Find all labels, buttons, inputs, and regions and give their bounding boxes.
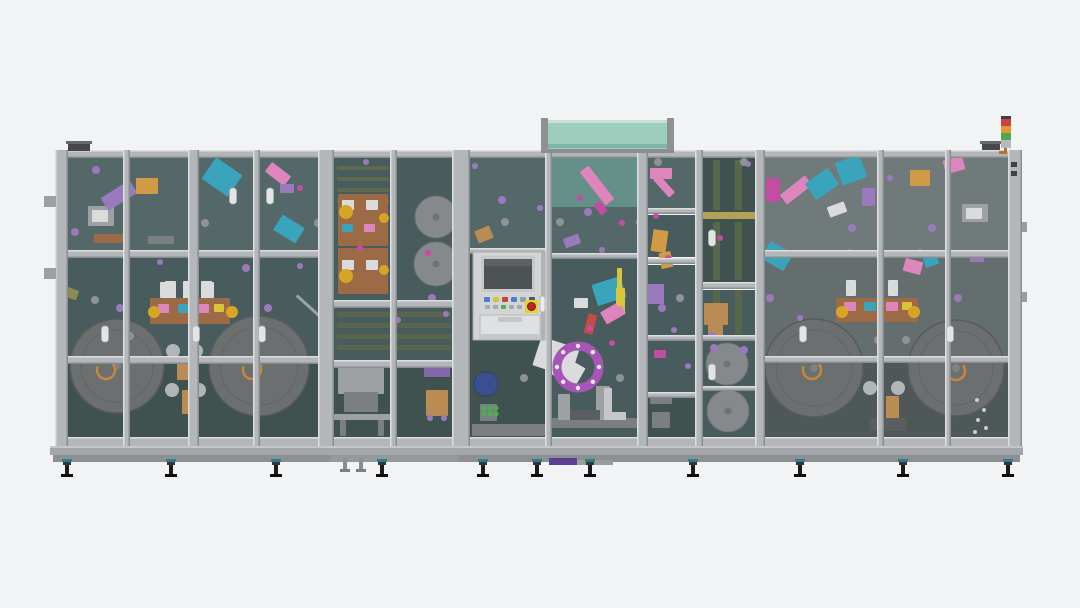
component — [701, 212, 757, 219]
component-dot — [357, 245, 363, 251]
component — [910, 170, 930, 186]
foot-neck — [1004, 462, 1012, 465]
component-dot — [863, 381, 877, 395]
component-dot — [556, 218, 564, 226]
foot-stem — [169, 465, 173, 475]
component-dot — [685, 363, 691, 369]
machine-scene — [0, 0, 1080, 608]
component-dot — [577, 195, 583, 201]
reel-hub — [952, 364, 960, 372]
component-dot — [520, 374, 528, 382]
foot-neck — [63, 462, 71, 465]
rail-shadow — [703, 288, 755, 290]
foot-base — [687, 474, 699, 477]
material-reel-medium — [414, 242, 458, 286]
frame-rail — [648, 335, 695, 341]
side-tab — [44, 196, 56, 207]
foot-collar — [377, 459, 387, 462]
component — [92, 210, 108, 222]
post-face — [318, 150, 334, 448]
post-highlight — [877, 150, 879, 448]
component — [862, 188, 875, 206]
component-dot — [494, 412, 499, 417]
component-dot — [425, 250, 431, 256]
component — [366, 200, 378, 210]
component-dot — [766, 294, 774, 302]
conveyor-stripe — [735, 222, 742, 280]
component-dot — [472, 163, 478, 169]
component — [198, 304, 209, 313]
component-dot — [379, 265, 389, 275]
post-shadow — [551, 150, 553, 448]
rail-highlight — [648, 258, 695, 260]
foot-stem — [1006, 465, 1010, 475]
endcap-vent — [1011, 171, 1017, 176]
component — [846, 280, 856, 296]
component-dot — [91, 296, 99, 304]
door-handle — [947, 326, 954, 342]
frame-post — [253, 150, 260, 448]
component — [886, 302, 898, 311]
component — [338, 368, 384, 394]
post-face — [637, 150, 648, 448]
component — [870, 418, 906, 431]
foot-base — [794, 474, 806, 477]
door-handle — [800, 326, 807, 342]
glass-panel — [703, 158, 755, 282]
base-skirt-drop — [330, 455, 458, 462]
component-dot — [537, 205, 543, 211]
component — [654, 350, 666, 358]
ring-hole — [597, 365, 601, 369]
post-face — [1008, 150, 1022, 448]
component-dot — [339, 205, 353, 219]
frame-post — [188, 150, 199, 448]
foot-stem — [588, 465, 592, 475]
component — [424, 367, 450, 377]
roof-vent — [66, 141, 92, 151]
component-dot — [740, 158, 748, 166]
endcap-vent — [1011, 162, 1017, 167]
component — [136, 178, 158, 194]
foot-stem — [691, 465, 695, 475]
component — [280, 184, 294, 193]
post-highlight — [188, 150, 190, 448]
component-dot — [599, 247, 605, 253]
reel-hub — [433, 261, 440, 268]
component-dot — [363, 159, 369, 165]
component-dot — [976, 418, 980, 422]
frame-post — [945, 150, 951, 448]
tealbox-post-left — [541, 118, 548, 151]
component — [366, 260, 378, 270]
component — [204, 282, 214, 298]
component-dot — [71, 228, 79, 236]
foot-base — [165, 474, 177, 477]
foot-collar — [795, 459, 805, 462]
component — [378, 420, 384, 436]
component-dot — [609, 340, 615, 346]
foot-base — [531, 474, 543, 477]
rail-shadow — [648, 213, 695, 215]
hmi-button — [493, 305, 498, 309]
frame-rail — [703, 282, 755, 289]
frame-rail — [552, 253, 637, 259]
foot-neck — [272, 462, 280, 465]
component-dot — [501, 218, 509, 226]
machine-render-stage — [0, 0, 1080, 608]
material-reel-large — [908, 320, 1004, 416]
hmi-screen-glare — [484, 259, 532, 266]
hmi-drawer-handle — [498, 317, 522, 322]
post-shadow — [129, 150, 131, 448]
ring-hole — [591, 350, 595, 354]
component — [652, 412, 670, 428]
vent-cap — [66, 141, 92, 144]
ring-hole — [576, 344, 580, 348]
post-shadow — [469, 150, 471, 448]
rail-shadow — [55, 157, 1022, 159]
component — [342, 224, 353, 232]
frame-post — [318, 150, 334, 448]
component — [766, 178, 780, 202]
component-dot — [902, 336, 910, 344]
foot-stem — [274, 465, 278, 475]
component-dot — [717, 235, 723, 241]
rail-shadow — [648, 263, 695, 265]
reel-hub — [724, 361, 731, 368]
component-dot — [297, 185, 303, 191]
component — [966, 208, 982, 219]
roof-vent — [980, 141, 1002, 150]
component-dot — [427, 415, 433, 421]
frame-rail — [55, 150, 1022, 158]
frame-rail — [648, 258, 695, 264]
component — [888, 280, 898, 296]
component-dot — [982, 408, 986, 412]
post-highlight — [755, 150, 757, 448]
foot-neck — [796, 462, 804, 465]
vent-body — [982, 143, 1000, 150]
foot-neck — [167, 462, 175, 465]
door-handle — [230, 188, 237, 204]
rail-shadow — [703, 390, 755, 392]
component — [160, 282, 170, 298]
component-dot — [482, 412, 487, 417]
material-reel-large — [70, 319, 164, 413]
post-highlight — [945, 150, 947, 448]
glass-panel — [552, 207, 637, 259]
foot-stem — [343, 458, 347, 470]
component — [704, 303, 728, 325]
hmi-button — [493, 297, 499, 302]
post-shadow — [1021, 150, 1023, 448]
reel-hub — [725, 408, 732, 415]
component-dot — [494, 406, 499, 411]
side-tab — [44, 268, 56, 279]
glass-panel — [648, 158, 695, 208]
component-dot — [379, 213, 389, 223]
rail-highlight — [765, 250, 1008, 252]
post-face — [55, 150, 68, 448]
foot-collar — [532, 459, 542, 462]
door-handle — [709, 364, 716, 380]
rail-shadow — [765, 362, 1008, 364]
component — [178, 304, 189, 313]
post-shadow — [198, 150, 200, 448]
foot-stem — [481, 465, 485, 475]
post-highlight — [253, 150, 255, 448]
component-dot — [619, 220, 625, 226]
rail-shadow — [648, 397, 695, 399]
rail-shadow — [552, 258, 637, 260]
reel-hub — [433, 214, 440, 221]
component — [340, 420, 346, 436]
component-dot — [891, 381, 905, 395]
conveyor-stripe — [337, 177, 389, 181]
foot-collar — [271, 459, 281, 462]
base-skirt-highlight — [50, 446, 1023, 448]
rail-highlight — [470, 248, 545, 250]
rail-highlight — [648, 335, 695, 337]
conveyor-stripe — [735, 160, 742, 210]
hmi-drawer-shade — [480, 334, 540, 338]
frame-post — [452, 150, 470, 448]
door-handle — [102, 326, 109, 342]
component-dot — [848, 224, 856, 232]
foot-neck — [479, 462, 487, 465]
component-dot — [488, 412, 493, 417]
frame-post — [55, 150, 68, 448]
component-dot — [339, 269, 353, 283]
component-dot — [226, 306, 238, 318]
component — [426, 390, 448, 416]
hmi-button — [501, 305, 506, 309]
vent-body — [68, 143, 90, 151]
frame-rail — [765, 356, 1008, 363]
component-dot — [740, 346, 748, 354]
tealbox-glass-highlight — [548, 120, 667, 123]
component-dot — [710, 344, 718, 352]
foot-collar — [166, 459, 176, 462]
door-handle — [709, 230, 716, 246]
material-reel-medium — [707, 390, 749, 432]
frame-rail — [765, 250, 1008, 258]
post-face — [452, 150, 470, 448]
frame-post — [877, 150, 884, 448]
rail-highlight — [648, 392, 695, 394]
component-dot — [166, 344, 180, 358]
component — [570, 410, 600, 420]
frame-rail — [703, 335, 755, 341]
hmi-button — [517, 305, 522, 309]
frame-post — [390, 150, 397, 448]
post-highlight — [452, 150, 454, 448]
post-highlight — [1008, 150, 1010, 448]
post-shadow — [702, 150, 704, 448]
rail-highlight — [552, 253, 637, 255]
post-face — [188, 150, 199, 448]
blue-reel — [474, 372, 498, 396]
ring-hole — [561, 380, 565, 384]
foot-base — [897, 474, 909, 477]
frame-post — [637, 150, 648, 448]
component — [558, 394, 570, 420]
component-dot — [482, 406, 487, 411]
component-dot — [658, 304, 666, 312]
component — [604, 412, 626, 420]
component-dot — [616, 374, 624, 382]
foot-neck — [378, 462, 386, 465]
foot-base — [1002, 474, 1014, 477]
component-dot — [92, 166, 100, 174]
component-dot — [443, 311, 449, 317]
foot-stem — [359, 458, 363, 470]
rail-highlight — [648, 208, 695, 210]
frame-rail — [648, 208, 695, 214]
ring-hole — [591, 380, 595, 384]
frame-post — [1008, 150, 1022, 448]
rail-shadow — [648, 340, 695, 342]
foot-base — [376, 474, 388, 477]
hmi-button — [511, 297, 517, 302]
rail-highlight — [55, 150, 1022, 152]
foot-collar — [585, 459, 595, 462]
door-handle — [259, 326, 266, 342]
ring-hole — [561, 350, 565, 354]
foot-neck — [533, 462, 541, 465]
component-dot — [441, 415, 447, 421]
rail-highlight — [55, 437, 1022, 439]
component-dot — [676, 294, 684, 302]
foot-base — [584, 474, 596, 477]
stack-light-green — [1001, 133, 1011, 140]
foot-stem — [901, 465, 905, 475]
component — [148, 236, 174, 244]
foot-collar — [688, 459, 698, 462]
post-shadow — [396, 150, 398, 448]
foot-collar — [1003, 459, 1013, 462]
foot-neck — [586, 462, 594, 465]
foot-neck — [899, 462, 907, 465]
ring-hole — [576, 386, 580, 390]
foot-base — [477, 474, 489, 477]
component-dot — [984, 426, 988, 430]
foot-stem — [535, 465, 539, 475]
post-highlight — [637, 150, 639, 448]
component — [648, 284, 664, 304]
tealbox-post-right — [667, 118, 674, 151]
component — [94, 234, 126, 243]
component — [574, 298, 588, 308]
stack-light-cap — [1001, 116, 1011, 119]
door-handle — [267, 188, 274, 204]
material-reel-medium — [415, 196, 457, 238]
component-dot — [488, 406, 493, 411]
post-shadow — [764, 150, 766, 448]
post-highlight — [55, 150, 57, 448]
foot-collar — [62, 459, 72, 462]
ring-hole — [555, 365, 559, 369]
component — [214, 304, 224, 312]
component — [342, 260, 354, 270]
frame-post — [695, 150, 703, 448]
reel-hub — [810, 364, 818, 372]
post-shadow — [259, 150, 261, 448]
component-dot — [148, 306, 160, 318]
post-highlight — [318, 150, 320, 448]
hmi-button — [520, 297, 526, 302]
door-handle — [193, 326, 200, 342]
rail-highlight — [703, 282, 755, 284]
frame-post — [545, 150, 552, 448]
component — [651, 229, 669, 253]
component-dot — [671, 327, 677, 333]
frame-post — [123, 150, 130, 448]
component-dot — [973, 430, 977, 434]
foot-collar — [898, 459, 908, 462]
rail-shadow — [703, 340, 755, 342]
conveyor-stripe — [337, 188, 389, 192]
component-dot — [264, 304, 272, 312]
component-dot — [954, 294, 962, 302]
tealbox-glass-shade — [548, 144, 667, 148]
rail-highlight — [703, 335, 755, 337]
component-dot — [975, 398, 979, 402]
foot-stem — [380, 465, 384, 475]
frame-post — [755, 150, 765, 448]
component-dot — [242, 264, 250, 272]
component-dot — [165, 383, 179, 397]
foot-base — [270, 474, 282, 477]
rail-highlight — [703, 386, 755, 388]
foot-stem — [65, 465, 69, 475]
post-shadow — [67, 150, 69, 448]
post-highlight — [390, 150, 392, 448]
side-tab — [1022, 292, 1027, 302]
component-dot — [297, 263, 303, 269]
component-dot — [928, 224, 936, 232]
stack-light-elbow — [999, 151, 1007, 154]
post-shadow — [333, 150, 335, 448]
side-tab — [1022, 222, 1027, 232]
component-dot — [797, 315, 803, 321]
post-highlight — [123, 150, 125, 448]
component — [472, 424, 545, 436]
stack-light-base — [1001, 140, 1011, 148]
rail-highlight — [765, 356, 1008, 358]
foot-neck — [689, 462, 697, 465]
frame-rail — [703, 386, 755, 391]
under-machine-purple-box — [549, 458, 577, 465]
component — [344, 392, 378, 412]
hmi-panel — [473, 252, 545, 340]
post-shadow — [647, 150, 649, 448]
foot-collar — [478, 459, 488, 462]
component-dot — [498, 196, 506, 204]
component — [617, 268, 622, 306]
rail-shadow — [765, 257, 1008, 259]
component — [334, 414, 390, 420]
component-dot — [587, 325, 593, 331]
foot-base — [61, 474, 73, 477]
component-dot — [584, 208, 592, 216]
hmi-button — [484, 297, 490, 302]
component — [364, 224, 375, 232]
conveyor-stripe — [735, 290, 742, 334]
component-dot — [157, 259, 163, 265]
post-shadow — [883, 150, 885, 448]
